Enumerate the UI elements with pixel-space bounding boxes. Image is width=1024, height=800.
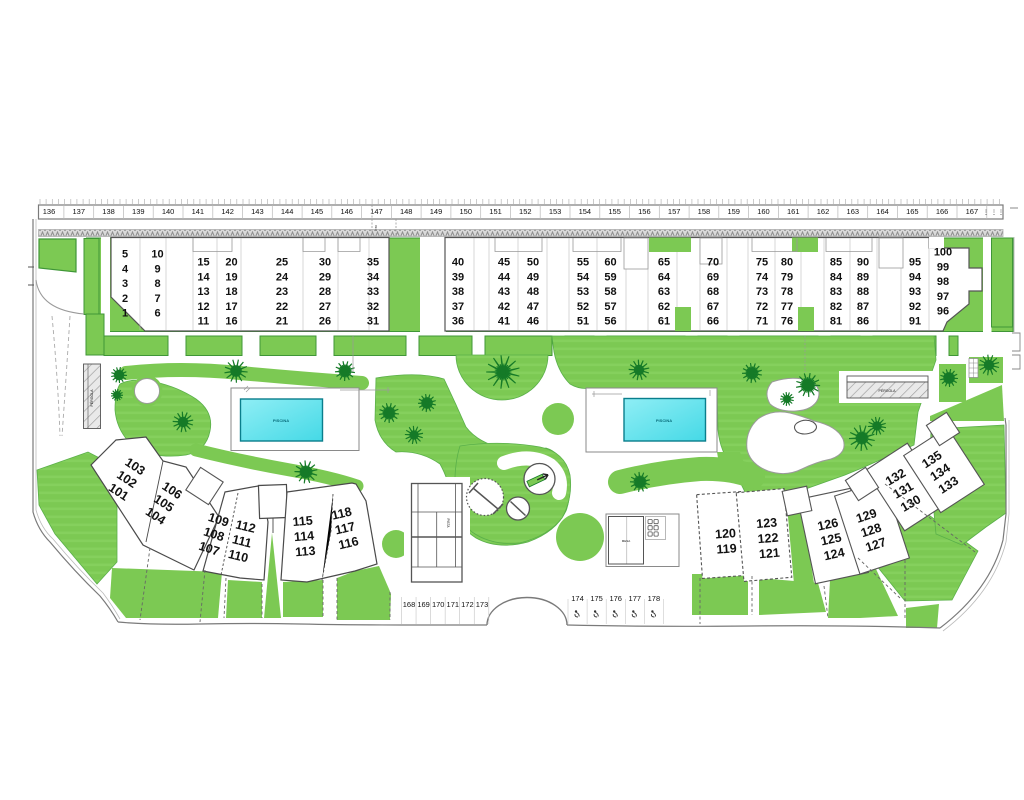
svg-text:43: 43	[498, 286, 510, 298]
svg-text:69: 69	[707, 271, 719, 283]
svg-text:123: 123	[756, 515, 778, 531]
svg-text:78: 78	[781, 286, 793, 298]
svg-text:121: 121	[758, 546, 780, 562]
svg-text:24: 24	[276, 271, 289, 283]
svg-text:76: 76	[781, 316, 793, 328]
svg-text:162: 162	[817, 207, 830, 216]
svg-text:64: 64	[658, 271, 671, 283]
svg-text:11: 11	[198, 316, 210, 328]
svg-text:90: 90	[857, 257, 869, 269]
svg-text:45: 45	[498, 257, 510, 269]
svg-text:163: 163	[847, 207, 860, 216]
svg-text:19: 19	[225, 271, 237, 283]
svg-text:152: 152	[519, 207, 532, 216]
svg-text:66: 66	[707, 316, 719, 328]
svg-text:57: 57	[604, 301, 616, 313]
svg-text:17: 17	[225, 301, 237, 313]
svg-text:138: 138	[102, 207, 115, 216]
svg-text:5: 5	[122, 249, 128, 261]
svg-text:172: 172	[461, 600, 474, 609]
svg-text:59: 59	[604, 271, 616, 283]
svg-text:95: 95	[909, 257, 921, 269]
svg-text:73: 73	[756, 286, 768, 298]
svg-text:171: 171	[447, 600, 460, 609]
svg-text:3: 3	[122, 278, 128, 290]
svg-text:14: 14	[197, 271, 210, 283]
svg-text:165: 165	[906, 207, 919, 216]
svg-text:80: 80	[781, 257, 793, 269]
svg-text:79: 79	[781, 271, 793, 283]
svg-text:36: 36	[452, 316, 464, 328]
svg-text:⋮: ⋮	[998, 210, 1004, 216]
svg-text:2: 2	[122, 293, 128, 305]
svg-text:119: 119	[716, 541, 737, 556]
svg-text:156: 156	[638, 207, 651, 216]
svg-text:175: 175	[590, 594, 603, 603]
svg-text:173: 173	[476, 600, 489, 609]
svg-text:71: 71	[756, 316, 768, 328]
svg-text:141: 141	[192, 207, 205, 216]
svg-text:153: 153	[549, 207, 562, 216]
svg-text:32: 32	[367, 301, 379, 313]
svg-text:91: 91	[909, 316, 921, 328]
svg-text:157: 157	[668, 207, 681, 216]
svg-text:84: 84	[830, 271, 843, 283]
svg-text:143: 143	[251, 207, 264, 216]
svg-text:PÉRGOLA: PÉRGOLA	[879, 388, 897, 393]
svg-text:147: 147	[370, 207, 383, 216]
svg-text:35: 35	[367, 257, 379, 269]
svg-text:20: 20	[225, 257, 237, 269]
svg-text:77: 77	[781, 301, 793, 313]
svg-text:160: 160	[757, 207, 770, 216]
svg-text:85: 85	[830, 257, 842, 269]
svg-text:10: 10	[151, 249, 163, 261]
svg-text:58: 58	[604, 286, 616, 298]
svg-text:67: 67	[707, 301, 719, 313]
svg-text:54: 54	[577, 271, 590, 283]
svg-text:2.50: 2.50	[374, 225, 378, 231]
svg-text:47: 47	[527, 301, 539, 313]
svg-text:1: 1	[122, 308, 128, 320]
svg-text:27: 27	[319, 301, 331, 313]
svg-text:12: 12	[197, 301, 209, 313]
svg-text:167: 167	[966, 207, 979, 216]
svg-text:174: 174	[571, 594, 584, 603]
svg-text:68: 68	[707, 286, 719, 298]
svg-text:158: 158	[698, 207, 711, 216]
svg-text:168: 168	[403, 600, 416, 609]
svg-text:23: 23	[276, 286, 288, 298]
svg-text:61: 61	[658, 316, 670, 328]
svg-text:82: 82	[830, 301, 842, 313]
svg-text:22: 22	[276, 301, 288, 313]
svg-text:MESA: MESA	[622, 539, 631, 543]
svg-text:81: 81	[830, 316, 842, 328]
svg-text:144: 144	[281, 207, 294, 216]
svg-text:136: 136	[43, 207, 56, 216]
svg-text:139: 139	[132, 207, 145, 216]
svg-text:88: 88	[857, 286, 869, 298]
svg-text:PISCINA: PISCINA	[273, 418, 289, 423]
svg-text:159: 159	[727, 207, 740, 216]
svg-text:140: 140	[162, 207, 175, 216]
svg-text:7: 7	[154, 293, 160, 305]
svg-text:114: 114	[293, 529, 314, 545]
svg-text:21: 21	[276, 316, 288, 328]
svg-text:6: 6	[154, 308, 160, 320]
svg-text:161: 161	[787, 207, 800, 216]
svg-text:34: 34	[367, 271, 380, 283]
svg-text:48: 48	[527, 286, 539, 298]
svg-text:145: 145	[311, 207, 324, 216]
svg-text:170: 170	[432, 600, 445, 609]
svg-text:94: 94	[909, 271, 922, 283]
svg-text:55: 55	[577, 257, 589, 269]
svg-text:155: 155	[608, 207, 621, 216]
svg-text:65: 65	[658, 257, 670, 269]
svg-text:8: 8	[154, 278, 160, 290]
svg-text:92: 92	[909, 301, 921, 313]
svg-text:166: 166	[936, 207, 949, 216]
svg-text:62: 62	[658, 301, 670, 313]
svg-text:99: 99	[937, 261, 949, 273]
svg-text:98: 98	[937, 276, 949, 288]
svg-text:39: 39	[452, 271, 464, 283]
svg-text:149: 149	[430, 207, 443, 216]
svg-text:9: 9	[154, 263, 160, 275]
svg-text:113: 113	[295, 544, 316, 560]
svg-text:PÉRGOLA: PÉRGOLA	[89, 389, 94, 407]
svg-text:⋮: ⋮	[991, 210, 997, 216]
svg-text:63: 63	[658, 286, 670, 298]
svg-text:86: 86	[857, 316, 869, 328]
svg-text:42: 42	[498, 301, 510, 313]
svg-text:70: 70	[707, 257, 719, 269]
svg-text:176: 176	[609, 594, 622, 603]
svg-text:74: 74	[756, 271, 769, 283]
svg-text:178: 178	[648, 594, 661, 603]
svg-text:150: 150	[460, 207, 473, 216]
svg-text:13: 13	[197, 286, 209, 298]
svg-text:50: 50	[527, 257, 539, 269]
svg-text:25: 25	[276, 257, 288, 269]
svg-text:PISCINA: PISCINA	[656, 418, 672, 423]
svg-text:177: 177	[629, 594, 642, 603]
svg-text:⋮: ⋮	[983, 210, 989, 216]
svg-text:93: 93	[909, 286, 921, 298]
svg-text:37: 37	[452, 301, 464, 313]
svg-text:60: 60	[604, 257, 616, 269]
svg-text:53: 53	[577, 286, 589, 298]
svg-text:49: 49	[527, 271, 539, 283]
svg-text:97: 97	[937, 291, 949, 303]
svg-text:16: 16	[225, 316, 237, 328]
svg-text:51: 51	[577, 316, 589, 328]
svg-text:31: 31	[367, 316, 379, 328]
svg-text:33: 33	[367, 286, 379, 298]
svg-text:28: 28	[319, 286, 331, 298]
svg-text:44: 44	[498, 271, 511, 283]
svg-text:115: 115	[292, 513, 313, 529]
svg-text:72: 72	[756, 301, 768, 313]
svg-text:154: 154	[579, 207, 592, 216]
svg-text:4: 4	[122, 263, 129, 275]
svg-text:137: 137	[73, 207, 86, 216]
svg-text:151: 151	[489, 207, 502, 216]
svg-text:146: 146	[340, 207, 353, 216]
svg-text:29: 29	[319, 271, 331, 283]
svg-text:122: 122	[757, 531, 779, 547]
svg-text:142: 142	[221, 207, 234, 216]
svg-text:PISTA: PISTA	[446, 519, 450, 529]
svg-text:164: 164	[876, 207, 889, 216]
svg-text:100: 100	[934, 247, 952, 259]
svg-text:15: 15	[197, 257, 209, 269]
svg-text:120: 120	[715, 526, 737, 541]
svg-text:83: 83	[830, 286, 842, 298]
svg-text:89: 89	[857, 271, 869, 283]
svg-text:87: 87	[857, 301, 869, 313]
svg-text:56: 56	[604, 316, 616, 328]
svg-text:96: 96	[937, 306, 949, 318]
svg-text:169: 169	[417, 600, 430, 609]
svg-text:148: 148	[400, 207, 413, 216]
svg-text:26: 26	[319, 316, 331, 328]
svg-text:40: 40	[452, 257, 464, 269]
svg-text:46: 46	[527, 316, 539, 328]
svg-text:30: 30	[319, 257, 331, 269]
svg-text:75: 75	[756, 257, 768, 269]
svg-text:38: 38	[452, 286, 464, 298]
svg-text:18: 18	[225, 286, 237, 298]
svg-text:41: 41	[498, 316, 510, 328]
svg-text:52: 52	[577, 301, 589, 313]
